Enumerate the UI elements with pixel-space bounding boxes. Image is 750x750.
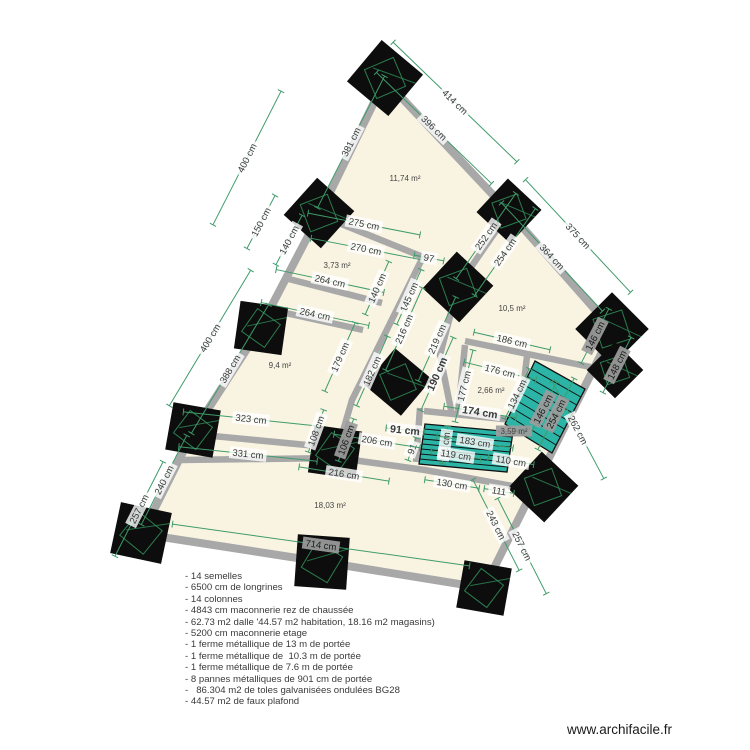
page: 400 cm381 cm150 cm140 cm400 cm388 cm257 … [0,0,750,750]
dimension-tick [244,247,250,250]
dimension-label: 262 cm [565,414,589,447]
room-area-label: 11,74 m² [390,174,421,183]
room-area-label: 3,59 m² [500,427,527,436]
room-area-label: 9,4 m² [269,361,292,370]
room-area-label: 3,73 m² [323,261,350,270]
dimension-tick [275,266,276,273]
dimension-tick [248,268,254,272]
note-line: - 8 pannes métalliques de 901 cm de port… [185,674,435,685]
dimension-tick [601,477,607,480]
note-line: - 86.304 m2 de toles galvanisées ondulée… [185,685,435,696]
column [234,301,288,355]
notes-list: - 14 semelles- 6500 cm de longrines- 14 … [185,571,435,708]
column [456,560,512,616]
dimension-tick [600,391,606,394]
note-line: - 6500 cm de longrines [185,582,435,593]
watermark-link[interactable]: www.archifacile.fr [567,722,672,737]
note-line: - 1 ferme métallique de 10.3 m de portée [185,651,435,662]
dimension-tick [516,569,522,572]
dimension-tick [278,90,284,93]
dimension-tick [543,592,549,595]
dimension-label: 97 [423,252,435,265]
note-line: - 62.73 m2 dalle '44.57 m2 habitation, 1… [185,617,435,628]
note-line: - 1 ferme métallique de 7.6 m de portée [185,662,435,673]
dimension-tick [210,223,216,226]
dimension-label: 400 cm [198,322,224,354]
note-line: - 4843 cm maconnerie rez de chaussée [185,605,435,616]
note-line: - 14 colonnes [185,594,435,605]
room-area-label: 2,66 m² [477,386,504,395]
dimension-label: 150 cm [250,206,274,239]
room-area-label: 18,03 m² [314,501,346,510]
dimension-label: 400 cm [236,142,260,175]
dimension-tick [273,263,279,266]
note-line: - 44.57 m2 de faux plafond [185,696,435,707]
dimension-label: 375 cm [563,221,592,251]
dimension-label: 111 [491,485,507,498]
dimension-tick [166,404,172,408]
dimension-tick [272,194,278,197]
note-line: - 14 semelles [185,571,435,582]
dimension-label: 414 cm [439,88,469,118]
dimension-tick [112,555,118,558]
dimension-tick [160,460,166,463]
note-line: - 5200 cm maconnerie etage [185,628,435,639]
room-area-label: 10,5 m² [498,304,525,313]
note-line: - 1 ferme métallique de 13 m de portée [185,639,435,650]
